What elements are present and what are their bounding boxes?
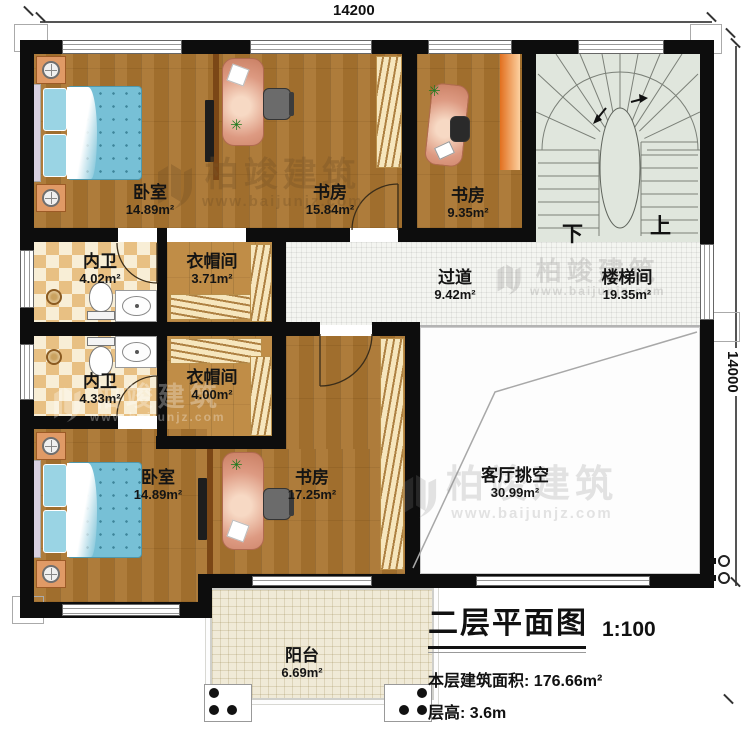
toilet	[89, 282, 113, 312]
dimension-tick	[725, 28, 736, 39]
room-area: 30.99m²	[455, 486, 575, 501]
wardrobe-closet-top	[170, 294, 262, 320]
nightstand	[36, 56, 66, 84]
wall	[372, 322, 405, 336]
room-name: 楼梯间	[567, 268, 687, 288]
cabinet	[500, 54, 520, 170]
wall	[700, 54, 714, 588]
room-area: 3.71m²	[152, 272, 272, 287]
wall	[20, 416, 118, 429]
room-name: 内卫	[43, 252, 157, 272]
room-name: 内卫	[43, 372, 157, 392]
dimension-tick	[23, 6, 34, 17]
nightstand	[36, 184, 66, 212]
room-area: 14.89m²	[90, 203, 210, 218]
wall	[272, 336, 286, 449]
toilet-tank	[87, 337, 115, 346]
shower-icon	[46, 349, 62, 365]
wardrobe-study-top	[376, 56, 402, 168]
wall	[20, 228, 118, 242]
dimension-right-value: 14000	[724, 348, 741, 396]
lamp-icon	[42, 565, 60, 583]
window	[20, 250, 34, 308]
room-area: 19.35m²	[567, 288, 687, 303]
room-label-bedroom-top: 卧室 14.89m²	[90, 183, 210, 217]
bed-headboard	[33, 460, 41, 558]
extension-bracket	[712, 312, 740, 342]
wall	[246, 228, 350, 242]
wall	[20, 322, 286, 336]
room-area: 4.00m²	[152, 388, 272, 403]
room-area: 9.42m²	[395, 288, 515, 303]
floor-plan: ✳ ✳ ✳	[0, 0, 750, 737]
post-dot	[209, 705, 219, 715]
room-label-bath-top: 内卫 4.02m²	[43, 252, 157, 286]
room-area: 15.84m²	[270, 203, 390, 218]
sink	[122, 342, 151, 362]
wardrobe-closet-bottom	[170, 338, 262, 364]
nightstand	[36, 560, 66, 588]
window	[700, 244, 714, 320]
column-symbol	[718, 572, 730, 584]
pillow	[43, 510, 67, 553]
title-row: 二层平面图 1:100	[428, 598, 728, 642]
wall	[405, 322, 420, 574]
room-area: 9.35m²	[408, 206, 528, 221]
room-label-study-top: 书房 15.84m²	[270, 183, 390, 217]
room-area: 4.33m²	[43, 392, 157, 407]
bed-sheet	[67, 87, 97, 179]
room-area: 14.89m²	[98, 488, 218, 503]
plant-icon: ✳	[230, 118, 243, 133]
room-area: 4.02m²	[43, 272, 157, 287]
dimension-top-value: 14200	[330, 2, 378, 19]
room-label-study-small: 书房 9.35m²	[408, 186, 528, 220]
room-name: 书房	[408, 186, 528, 206]
room-label-closet-top: 衣帽间 3.71m²	[152, 252, 272, 286]
staircase	[536, 54, 700, 242]
plan-title: 二层平面图	[428, 598, 588, 642]
room-name: 衣帽间	[152, 368, 272, 388]
room-name: 衣帽间	[152, 252, 272, 272]
wardrobe-study-bottom	[380, 338, 404, 570]
floor-height-value: 3.6m	[470, 705, 506, 722]
room-label-living-void: 客厅挑空 30.99m²	[455, 466, 575, 500]
window	[428, 40, 512, 54]
window	[476, 576, 650, 586]
floor-height-line: 层高: 3.6m	[428, 699, 728, 723]
post-dot	[417, 705, 427, 715]
nightstand	[36, 432, 66, 460]
sink	[122, 296, 151, 316]
stair-down-label: 下	[562, 218, 583, 248]
title-underline-thin	[428, 652, 586, 653]
plant-icon: ✳	[230, 458, 243, 473]
bed-sheet	[67, 463, 97, 557]
floor-living-void	[420, 327, 700, 574]
floor-area-value: 176.66m²	[534, 673, 603, 690]
floor-height-label: 层高:	[428, 705, 465, 722]
office-chair	[263, 88, 291, 120]
window	[62, 40, 182, 54]
column-symbol	[718, 555, 730, 567]
room-name: 书房	[270, 183, 390, 203]
room-label-closet-bottom: 衣帽间 4.00m²	[152, 368, 272, 402]
balcony-post	[384, 684, 432, 722]
pillow	[43, 134, 67, 177]
room-name: 卧室	[98, 468, 218, 488]
pillow	[43, 88, 67, 131]
room-area: 6.69m²	[242, 666, 362, 681]
wall	[20, 54, 34, 618]
wall	[156, 436, 286, 449]
window	[578, 40, 664, 54]
room-label-hallway: 过道 9.42m²	[395, 268, 515, 302]
room-name: 过道	[395, 268, 515, 288]
post-dot	[209, 688, 219, 698]
title-block: 二层平面图 1:100 本层建筑面积: 176.66m² 层高: 3.6m	[428, 598, 728, 723]
post-dot	[417, 688, 427, 698]
window	[62, 604, 180, 616]
floor-area-line: 本层建筑面积: 176.66m²	[428, 667, 728, 691]
lamp-icon	[42, 61, 60, 79]
column-symbol	[710, 558, 716, 564]
room-label-study-bottom: 书房 17.25m²	[252, 468, 372, 502]
window	[250, 40, 372, 54]
plant-icon: ✳	[428, 84, 441, 99]
post-dot	[399, 705, 409, 715]
wall	[286, 322, 320, 336]
lamp-icon	[42, 437, 60, 455]
post-dot	[227, 705, 237, 715]
room-name: 书房	[252, 468, 372, 488]
tv-icon	[205, 100, 214, 162]
room-label-balcony: 阳台 6.69m²	[242, 646, 362, 680]
lamp-icon	[42, 189, 60, 207]
desk-monitor	[450, 116, 470, 142]
room-name: 卧室	[90, 183, 210, 203]
room-label-bedroom-bottom: 卧室 14.89m²	[98, 468, 218, 502]
wall	[157, 228, 167, 242]
column-symbol	[710, 575, 716, 581]
wall	[398, 228, 522, 242]
room-label-stairwell: 楼梯间 19.35m²	[567, 268, 687, 302]
plan-scale: 1:100	[602, 618, 656, 642]
balcony-door	[252, 576, 372, 586]
bed-headboard	[33, 84, 41, 182]
floor-area-label: 本层建筑面积:	[428, 673, 529, 690]
stair-up-label: 上	[650, 210, 671, 240]
window	[20, 344, 34, 400]
dimension-line-top	[40, 21, 712, 23]
chair-arm	[289, 92, 294, 116]
pillow	[43, 464, 67, 507]
title-underline	[428, 646, 586, 649]
toilet-tank	[87, 311, 115, 320]
shower-icon	[46, 289, 62, 305]
room-area: 17.25m²	[252, 488, 372, 503]
room-name: 阳台	[242, 646, 362, 666]
room-label-bath-bottom: 内卫 4.33m²	[43, 372, 157, 406]
wall	[272, 242, 286, 322]
balcony-post	[204, 684, 252, 722]
room-name: 客厅挑空	[455, 466, 575, 486]
